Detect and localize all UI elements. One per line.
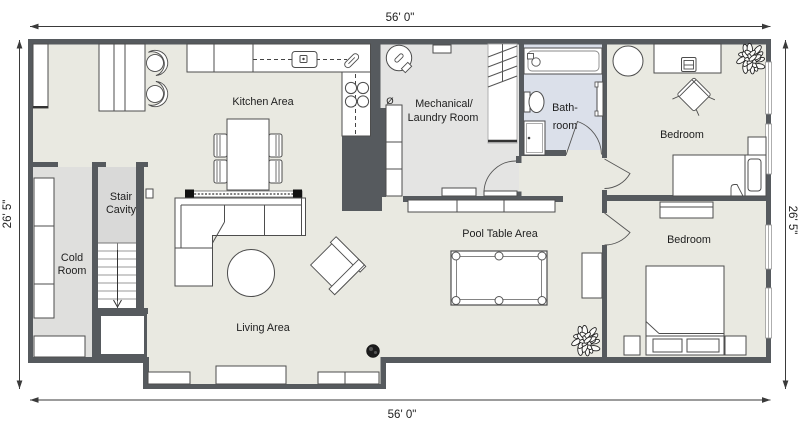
svg-text:Cold: Cold [61, 252, 83, 264]
svg-text:Pool Table Area: Pool Table Area [462, 228, 537, 240]
svg-text:Room: Room [58, 265, 87, 277]
svg-text:Mechanical/: Mechanical/ [415, 98, 473, 110]
svg-text:56' 0": 56' 0" [388, 409, 417, 421]
svg-text:Ø: Ø [386, 96, 394, 107]
svg-text:Laundry Room: Laundry Room [408, 112, 479, 124]
svg-text:Living Area: Living Area [236, 322, 289, 334]
svg-text:Bedroom: Bedroom [667, 234, 711, 246]
svg-text:Cavity: Cavity [106, 204, 137, 216]
svg-text:room: room [553, 120, 578, 132]
svg-text:26' 5": 26' 5" [2, 200, 14, 229]
svg-text:26' 5": 26' 5" [786, 206, 798, 235]
svg-text:Bath-: Bath- [552, 102, 578, 114]
svg-text:56' 0": 56' 0" [386, 12, 415, 24]
svg-text:Stair: Stair [110, 191, 133, 203]
svg-text:Kitchen Area: Kitchen Area [232, 96, 293, 108]
svg-text:Bedroom: Bedroom [660, 129, 704, 141]
